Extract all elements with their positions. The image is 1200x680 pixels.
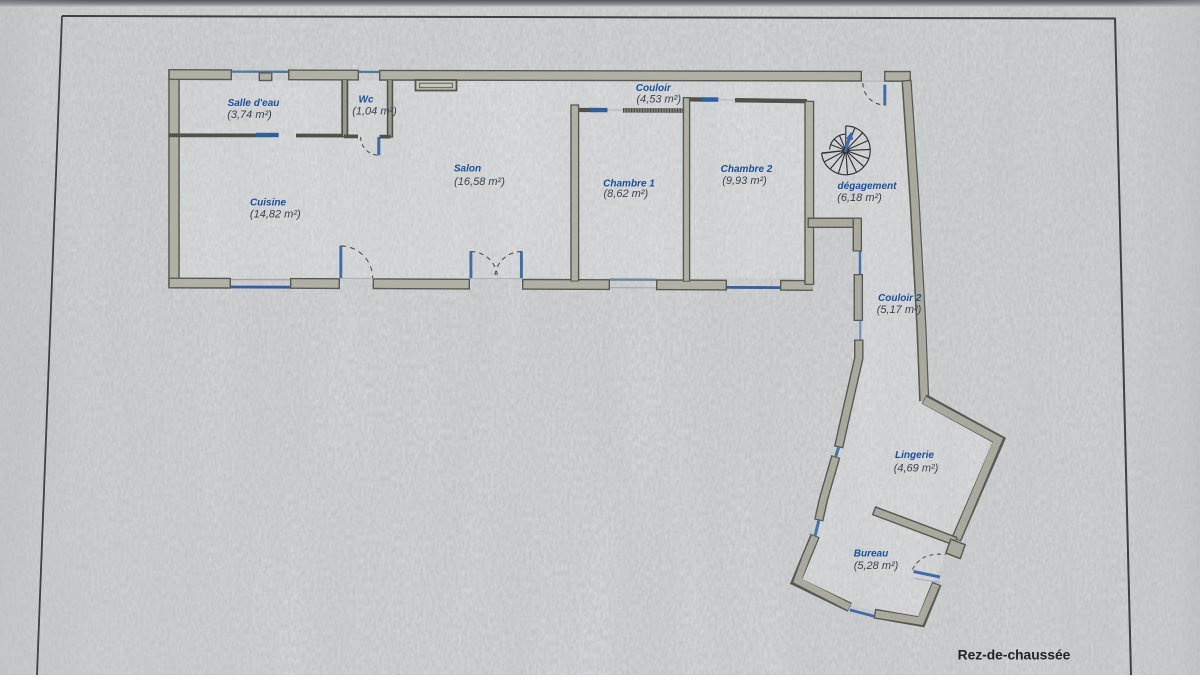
svg-text:Rez-de-chaussée: Rez-de-chaussée <box>958 648 1071 663</box>
svg-text:(1,04 m²): (1,04 m²) <box>352 106 397 118</box>
svg-text:Lingerie: Lingerie <box>895 450 934 461</box>
svg-text:(6,18 m²): (6,18 m²) <box>837 192 882 204</box>
svg-text:(14,82 m²): (14,82 m²) <box>250 209 301 221</box>
svg-text:(3,74 m²): (3,74 m²) <box>227 109 272 121</box>
svg-text:(5,17 m²): (5,17 m²) <box>877 304 922 316</box>
svg-text:Chambre 2: Chambre 2 <box>721 164 773 175</box>
svg-text:Salon: Salon <box>454 164 481 175</box>
svg-text:(5,28 m²): (5,28 m²) <box>854 560 899 572</box>
svg-text:Salle d'eau: Salle d'eau <box>228 98 280 109</box>
svg-text:(9,93 m²): (9,93 m²) <box>722 175 767 187</box>
svg-text:Bureau: Bureau <box>854 549 888 560</box>
svg-text:dégagement: dégagement <box>838 181 898 192</box>
svg-text:(16,58 m²): (16,58 m²) <box>454 176 505 188</box>
svg-text:Couloir: Couloir <box>636 83 672 94</box>
svg-text:(4,53 m²): (4,53 m²) <box>636 94 681 106</box>
svg-text:(4,69 m²): (4,69 m²) <box>894 463 939 475</box>
svg-text:Cuisine: Cuisine <box>250 198 287 209</box>
svg-text:Couloir 2: Couloir 2 <box>878 293 922 304</box>
svg-text:(8,62 m²): (8,62 m²) <box>603 188 648 200</box>
svg-text:Wc: Wc <box>359 95 374 106</box>
